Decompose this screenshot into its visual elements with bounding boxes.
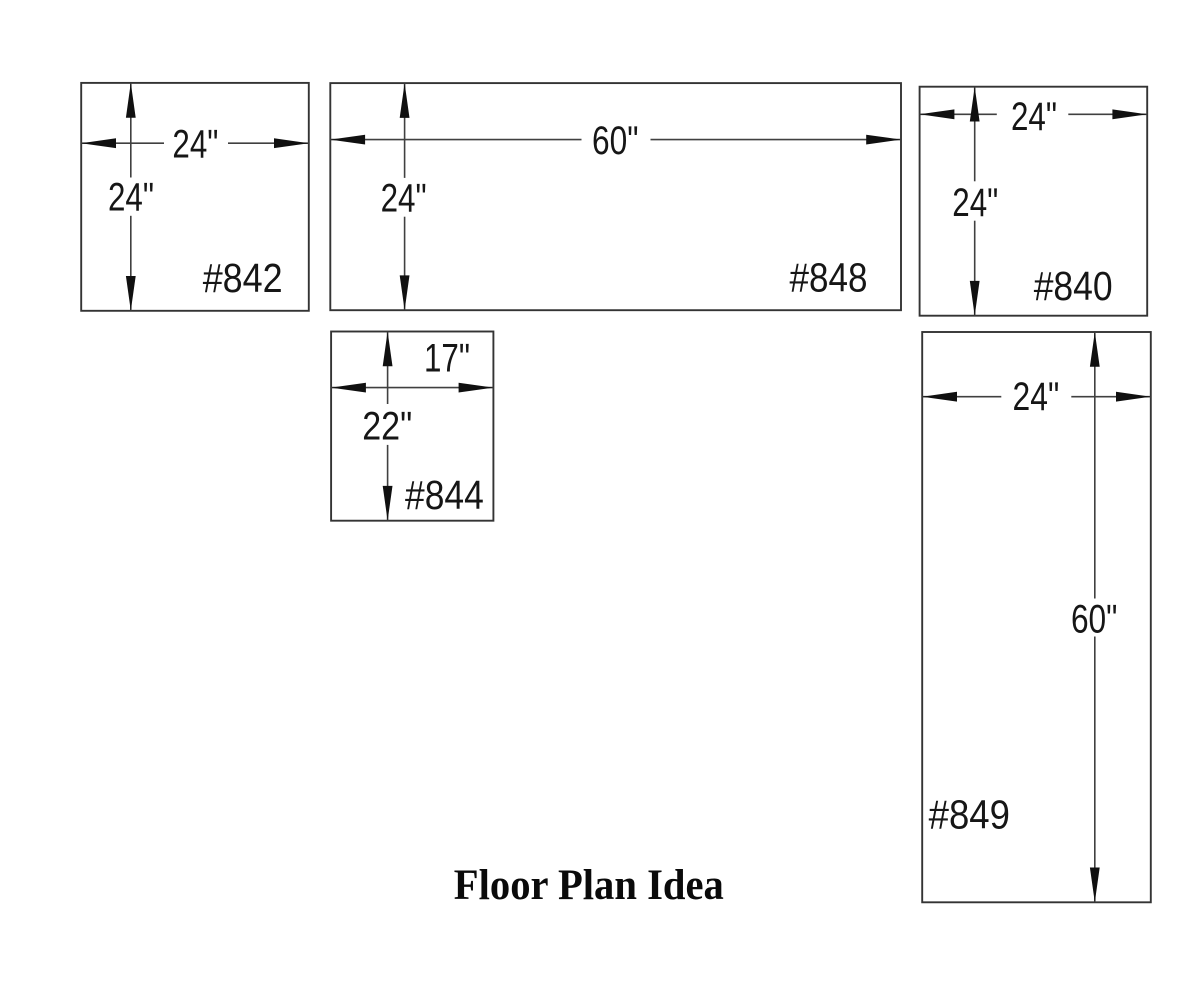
svg-text:17": 17" [424,336,470,380]
svg-text:24": 24" [952,181,998,225]
svg-text:#844: #844 [405,472,484,518]
svg-text:#849: #849 [929,792,1010,838]
svg-text:#842: #842 [203,255,283,301]
svg-text:#848: #848 [790,255,868,301]
svg-text:60": 60" [1071,598,1118,642]
svg-text:#840: #840 [1034,263,1113,309]
svg-text:24": 24" [1013,375,1060,419]
svg-text:24": 24" [381,177,427,221]
svg-text:24": 24" [1011,95,1057,139]
svg-text:24": 24" [172,123,218,167]
svg-text:60": 60" [592,119,639,163]
svg-text:22": 22" [362,405,412,449]
svg-text:24": 24" [108,175,154,219]
svg-text:Floor Plan Idea: Floor Plan Idea [454,862,724,909]
